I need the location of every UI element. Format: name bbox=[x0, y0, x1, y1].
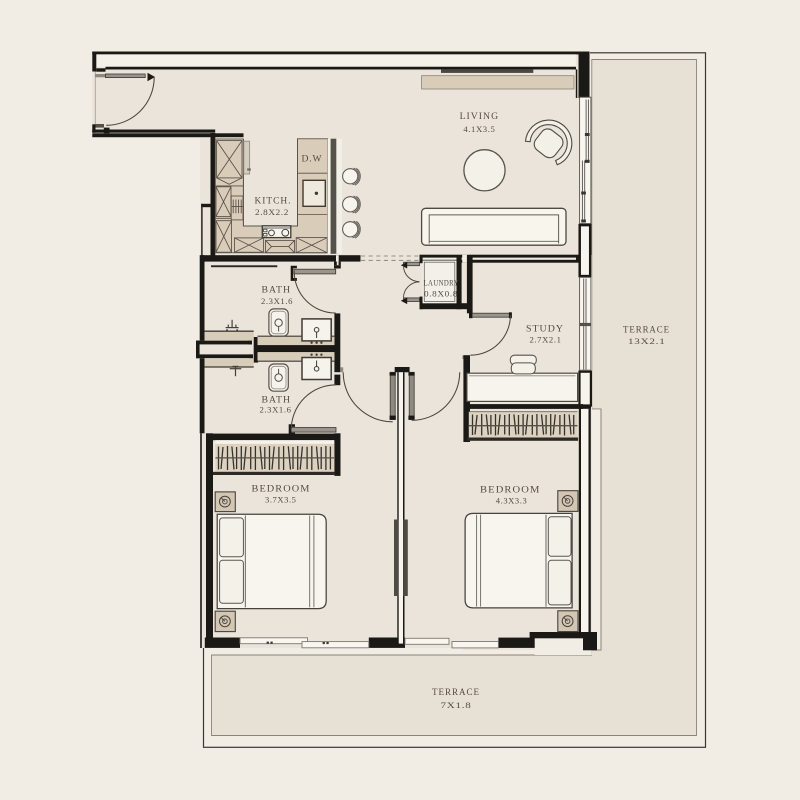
svg-text:13X2.1: 13X2.1 bbox=[628, 336, 666, 346]
svg-text:3.7X3.5: 3.7X3.5 bbox=[265, 494, 297, 504]
svg-text:LAUNDRY: LAUNDRY bbox=[424, 278, 460, 287]
svg-text:BATH: BATH bbox=[262, 285, 292, 295]
svg-text:STUDY: STUDY bbox=[526, 324, 564, 334]
svg-text:BEDROOM: BEDROOM bbox=[252, 484, 311, 494]
svg-text:2.3X1.6: 2.3X1.6 bbox=[261, 296, 293, 306]
svg-text:4.3X3.3: 4.3X3.3 bbox=[496, 496, 528, 506]
svg-text:2.7X2.1: 2.7X2.1 bbox=[530, 334, 562, 344]
svg-text:7X1.8: 7X1.8 bbox=[441, 700, 472, 710]
svg-text:4.1X3.5: 4.1X3.5 bbox=[463, 124, 495, 134]
svg-text:TERRACE: TERRACE bbox=[432, 688, 480, 698]
svg-text:LIVING: LIVING bbox=[460, 112, 500, 122]
svg-text:2.8X2.2: 2.8X2.2 bbox=[255, 207, 289, 217]
svg-text:BEDROOM: BEDROOM bbox=[480, 486, 541, 496]
svg-text:TERRACE: TERRACE bbox=[623, 325, 670, 335]
svg-text:0.8X0.8: 0.8X0.8 bbox=[424, 288, 458, 298]
svg-text:D.W: D.W bbox=[302, 154, 323, 164]
svg-text:2.3X1.6: 2.3X1.6 bbox=[260, 405, 292, 415]
svg-text:KITCH.: KITCH. bbox=[255, 197, 292, 207]
